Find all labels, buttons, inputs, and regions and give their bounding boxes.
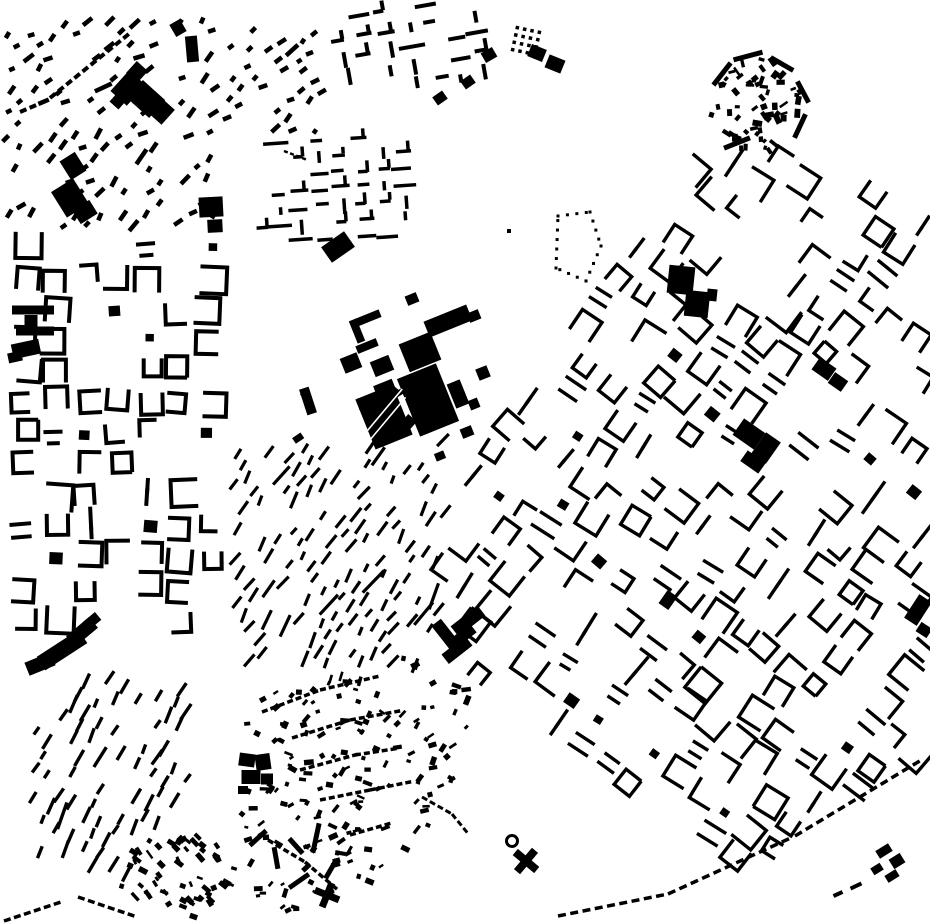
figure-ground-map xyxy=(0,0,930,924)
district-north-maze xyxy=(256,128,416,242)
district-west-perimeter xyxy=(9,232,227,634)
district-southwest-rows xyxy=(28,670,193,882)
district-center-hatch xyxy=(228,431,451,674)
map-viewport xyxy=(0,0,930,924)
district-south-corner-cluster xyxy=(119,833,237,921)
district-topleft-east-cluster xyxy=(222,26,327,135)
district-topcenter-bars xyxy=(331,0,489,88)
district-main-fabric xyxy=(431,146,930,871)
district-south-village xyxy=(238,656,471,914)
